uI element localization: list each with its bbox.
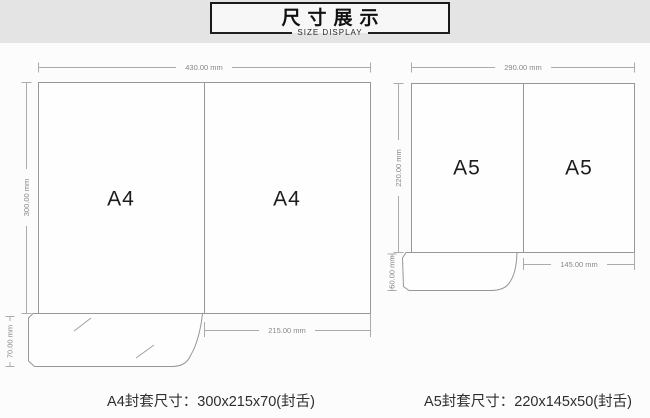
a5-caption: A5封套尺寸：220x145x50(封舌) (424, 390, 632, 411)
a5-width-label: 290.00 mm (504, 63, 542, 72)
a4-caption: A4封套尺寸：300x215x70(封舌) (107, 390, 315, 411)
a5-height-dimension: 220.00 mm (394, 84, 404, 253)
a4-flap-dimension: 70.00 mm (6, 317, 15, 367)
size-diagrams: 430.00 mm 300.00 mm 70.00 mm (0, 0, 650, 418)
a4-pocket-flap (29, 314, 203, 367)
a5-height-label: 220.00 mm (394, 149, 403, 187)
a5-panel-label-right: A5 (565, 157, 593, 180)
a5-flap-dimension: 50.00 mm (388, 254, 397, 291)
a5-width-dimension: 290.00 mm (412, 63, 635, 73)
a4-height-label: 300.00 mm (22, 179, 31, 217)
a5-diagram: 290.00 mm 220.00 mm 50.00 mm (388, 63, 635, 291)
a4-flap-label: 70.00 mm (6, 325, 15, 358)
a4-diagram: 430.00 mm 300.00 mm 70.00 mm (6, 63, 371, 367)
a4-height-dimension: 300.00 mm (22, 83, 32, 314)
a4-width-dimension: 430.00 mm (39, 63, 371, 73)
a4-panel-width-label: 215.00 mm (268, 326, 306, 335)
a4-panel-width-dimension: 215.00 mm (205, 314, 371, 338)
a5-pocket-flap (403, 253, 518, 291)
a5-flap-label: 50.00 mm (388, 255, 397, 288)
a5-panel-width-dimension: 145.00 mm (524, 253, 635, 271)
a4-panel-label-right: A4 (273, 188, 301, 211)
a4-width-label: 430.00 mm (185, 63, 223, 72)
a5-panel-label-left: A5 (453, 157, 481, 180)
a5-panel-width-label: 145.00 mm (560, 260, 598, 269)
a4-panel-label-left: A4 (107, 188, 135, 211)
size-display-page: 尺寸展示 SIZE DISPLAY 430.00 mm (0, 0, 650, 418)
